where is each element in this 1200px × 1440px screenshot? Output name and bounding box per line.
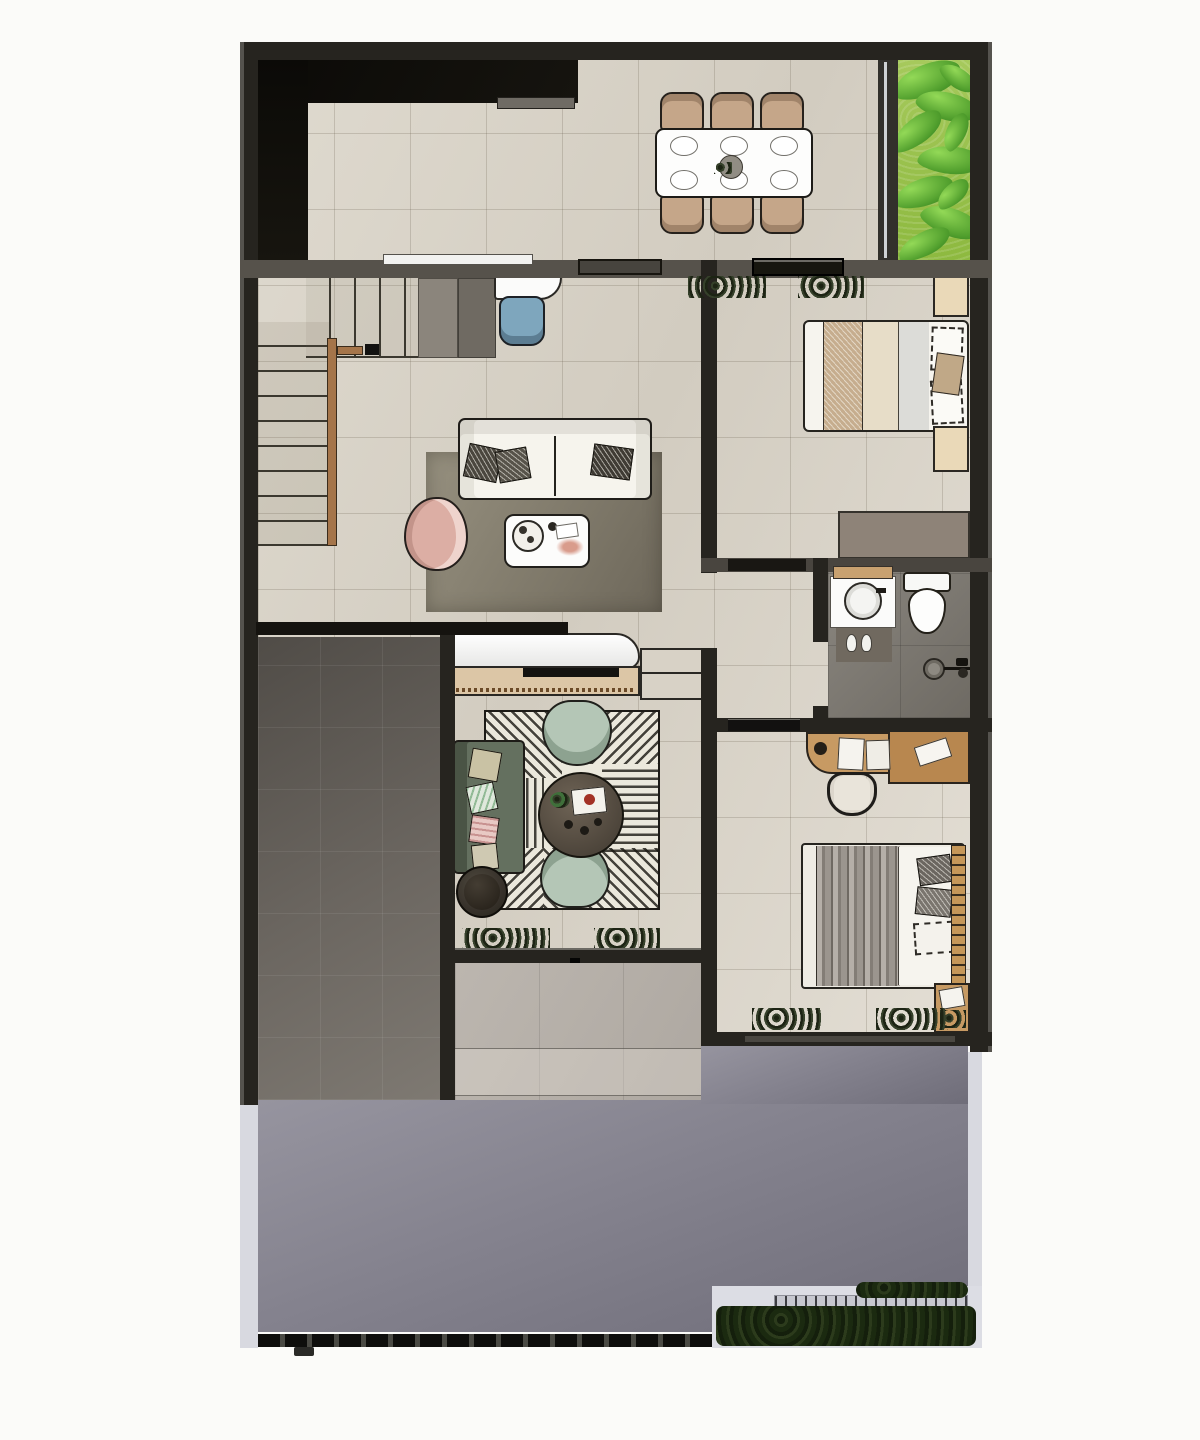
wall-right xyxy=(970,42,992,1052)
front-planter xyxy=(712,1286,982,1348)
dining-chair xyxy=(760,194,804,234)
round-coffee-table xyxy=(538,772,624,858)
stairs-newel xyxy=(365,344,379,355)
place-setting xyxy=(670,170,698,190)
vanity-shelf xyxy=(833,566,893,579)
plant-leaf xyxy=(898,222,954,260)
side-patio xyxy=(258,637,440,1100)
sofa-cushion-divider xyxy=(554,436,556,496)
bed1-nightstand-bottom xyxy=(933,426,969,472)
shower-head xyxy=(958,668,968,678)
place-setting xyxy=(670,136,698,156)
throw-pillow xyxy=(494,446,531,483)
window-panel xyxy=(752,258,844,276)
bed1-blanket-pale xyxy=(899,322,929,430)
table-plant xyxy=(550,792,570,808)
table-flowers xyxy=(556,538,584,556)
lounge-pillow xyxy=(468,814,500,846)
bed2-pillow-gray xyxy=(916,854,954,886)
side-cabinet-divider xyxy=(640,672,704,674)
tray-cup xyxy=(527,536,534,543)
lounge-floor-plants xyxy=(594,928,660,950)
wall-top xyxy=(240,42,992,60)
plant-leaf xyxy=(916,141,970,180)
hedge-shrubs xyxy=(716,1306,976,1346)
slipper xyxy=(846,634,857,652)
dining-chair xyxy=(710,92,754,132)
tv xyxy=(523,668,619,677)
desk-book xyxy=(865,740,890,771)
desk-chair-seat xyxy=(834,776,870,810)
dining-chair xyxy=(710,194,754,234)
centerpiece-plant xyxy=(714,162,732,174)
bed1-blanket-tan xyxy=(823,322,863,430)
slipper xyxy=(861,634,872,652)
dining-chair xyxy=(660,92,704,132)
storage-cabinet-a xyxy=(418,278,458,358)
door-handle-lounge xyxy=(570,958,580,963)
entry-gate xyxy=(258,1334,712,1347)
desk-chair-blue xyxy=(499,296,545,346)
dining-chair xyxy=(760,92,804,132)
beam-patio xyxy=(256,622,568,635)
wall-bedroom1-left xyxy=(701,260,717,573)
bed2-pillow-gray xyxy=(915,886,954,918)
table-cup xyxy=(594,818,602,826)
void-shelf xyxy=(497,97,575,109)
stairs-handrail-return xyxy=(337,346,363,355)
bed1-nightstand-top xyxy=(933,273,969,317)
gate-post xyxy=(294,1347,314,1356)
side-cabinet xyxy=(640,648,704,700)
place-setting xyxy=(770,136,798,156)
shower-valve xyxy=(956,658,968,666)
stairs-upper-flight xyxy=(306,278,422,358)
garden-window-glass xyxy=(884,62,887,258)
place-setting xyxy=(720,136,748,156)
tray-red-item xyxy=(584,794,595,805)
shower-drain xyxy=(923,658,945,680)
walkway-step xyxy=(455,1048,701,1096)
windowsill-bedroom2 xyxy=(745,1036,955,1042)
accent-armchair-pink xyxy=(404,497,468,571)
dining-chair xyxy=(660,194,704,234)
door-panel-bedroom1 xyxy=(728,559,806,571)
bed2-throw-drape xyxy=(816,846,900,986)
indoor-plants-row xyxy=(798,276,864,298)
floor-plan xyxy=(0,0,1200,1440)
kitchen-void-column xyxy=(258,60,308,260)
stairs-handrail xyxy=(327,338,337,546)
side-garden xyxy=(898,60,970,260)
hedge-shrubs-spill xyxy=(856,1282,968,1298)
bed2-pillow-white xyxy=(913,921,955,956)
bed2-floor-plants xyxy=(876,1008,948,1030)
tv-console-counter xyxy=(452,633,640,669)
garden-window-strip xyxy=(878,60,898,260)
bed1-wardrobe xyxy=(838,511,970,559)
bed1-blanket-cream xyxy=(863,322,899,430)
wall-left xyxy=(240,42,258,1105)
indoor-plants-row xyxy=(688,276,766,298)
driveway-upper-right xyxy=(701,1046,968,1104)
sliding-door-panel xyxy=(578,259,662,275)
door-panel-bedroom2 xyxy=(728,719,800,731)
desk-book xyxy=(837,737,865,770)
place-setting xyxy=(770,170,798,190)
wall-mid-cap xyxy=(383,254,533,265)
throw-pillow xyxy=(590,443,634,480)
storage-cabinet-b xyxy=(458,278,496,358)
console-trim xyxy=(456,688,636,692)
table-cup xyxy=(564,820,573,829)
wall-lounge-west xyxy=(440,628,455,1100)
nightstand-decor xyxy=(938,986,965,1010)
lounge-pillow xyxy=(468,748,503,783)
table-cup xyxy=(580,826,589,835)
bed2-headboard xyxy=(951,845,966,987)
wall-bathroom-left-upper xyxy=(813,558,828,642)
lounge-pillow xyxy=(465,781,498,814)
vanity-faucet xyxy=(876,588,886,593)
sidewalk-left xyxy=(240,1105,258,1348)
tray-cup xyxy=(519,526,527,534)
lounge-floor-plants xyxy=(462,928,550,950)
wall-lounge-east xyxy=(701,648,717,1046)
desk-cup xyxy=(814,742,827,755)
bed1-accent-pillow xyxy=(931,352,964,396)
side-pouf xyxy=(456,866,508,918)
bed2-floor-plants xyxy=(752,1008,822,1030)
